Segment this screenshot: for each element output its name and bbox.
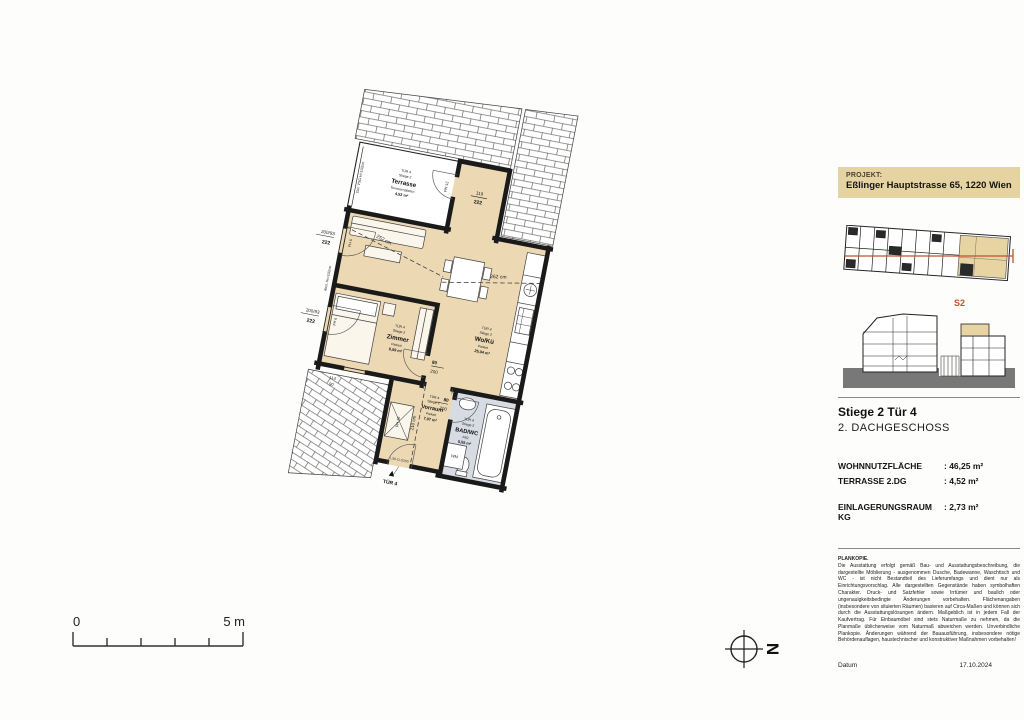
scale-bar-drawing: 0 5 m xyxy=(65,612,265,657)
unit-floor: 2. DACHGESCHOSS xyxy=(838,422,1020,434)
north-crosshair xyxy=(725,630,763,668)
project-header: PROJEKT: Eßlinger Hauptstrasse 65, 1220 … xyxy=(838,167,1020,198)
scale-zero-label: 0 xyxy=(73,614,80,629)
building-section-thumbnail xyxy=(843,310,1015,388)
north-indicator: N xyxy=(715,624,805,676)
divider-line xyxy=(838,548,1020,549)
metric-value: : 46,25 m² xyxy=(944,461,983,471)
section-label: S2 xyxy=(954,298,1020,308)
north-label: N xyxy=(763,643,782,655)
dining-table xyxy=(439,255,493,303)
roof-hatch-bottom-left xyxy=(288,369,388,488)
legal-fineprint: PLANKOPIE. Die Ausstattung erfolgt gemäß… xyxy=(838,556,1020,644)
fineprint-title: PLANKOPIE. xyxy=(838,556,869,562)
key-plan-thumbnail xyxy=(843,225,1015,287)
floor-plan-drawing: WM 252 cm 262 cm 210 cm xyxy=(285,78,585,530)
floor-plan: WM 252 cm 262 cm 210 cm xyxy=(285,78,585,530)
fineprint-body: Die Ausstattung erfolgt gemäß Bau- und A… xyxy=(838,563,1020,644)
metric-value: : 4,52 m² xyxy=(944,476,979,486)
divider-line xyxy=(838,397,1020,398)
metric-label: EINLAGERUNGSRAUM KG xyxy=(838,502,944,522)
scale-five-label: 5 m xyxy=(223,614,245,629)
metric-label: TERRASSE 2.DG xyxy=(838,476,944,486)
dim-w222-1: 222 xyxy=(321,239,331,247)
scale-bar: 0 5 m xyxy=(65,612,265,657)
area-metrics: WOHNNUTZFLÄCHE : 46,25 m² TERRASSE 2.DG … xyxy=(838,461,1020,522)
height-262-label: 262 cm xyxy=(490,274,507,281)
scale-bar-line xyxy=(73,632,243,646)
date-value: 17.10.2024 xyxy=(959,662,992,669)
section-highlight xyxy=(961,324,989,336)
title-block: PROJEKT: Eßlinger Hauptstrasse 65, 1220 … xyxy=(838,167,1020,669)
scanned-plan-page: WM 252 cm 262 cm 210 cm xyxy=(0,0,1024,720)
metric-row: WOHNNUTZFLÄCHE : 46,25 m² xyxy=(838,461,1020,471)
project-address: Eßlinger Hauptstrasse 65, 1220 Wien xyxy=(846,181,1012,192)
entry-leader xyxy=(393,466,398,476)
project-label: PROJEKT: xyxy=(846,172,1012,179)
metric-row: TERRASSE 2.DG : 4,52 m² xyxy=(838,476,1020,486)
date-row: Datum 17.10.2024 xyxy=(838,662,1020,669)
date-label: Datum xyxy=(838,662,857,669)
metric-label: WOHNNUTZFLÄCHE xyxy=(838,461,944,471)
unit-title: Stiege 2 Tür 4 xyxy=(838,405,1020,419)
north-arrow-drawing: N xyxy=(715,624,805,676)
metric-value: : 2,73 m² xyxy=(944,502,979,522)
abst-label: Abst. Hs=102cm xyxy=(323,266,332,292)
dim-w222-2: 222 xyxy=(306,318,316,326)
entry-label: TÜR 4 xyxy=(382,478,398,488)
metric-row: EINLAGERUNGSRAUM KG : 2,73 m² xyxy=(838,502,1020,522)
